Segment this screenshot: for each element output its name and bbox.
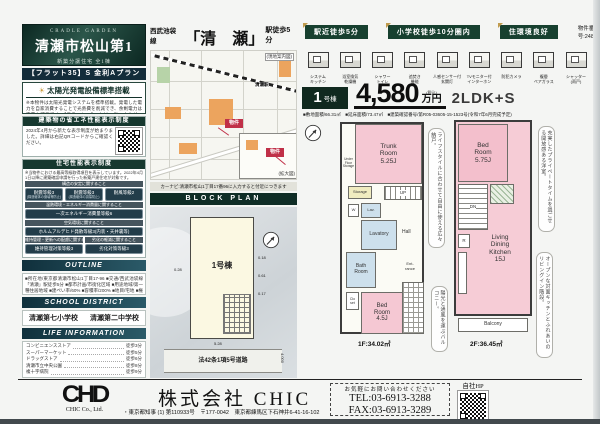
feature-item: システム キッチン [303,52,333,84]
floor-plans-area: Trunk Room 5.25J Under Floor Storage Sto… [302,120,594,376]
grade-badge-durability: 劣化対策等級3 [85,244,143,253]
grade-badge-seismic-1: 耐震等級3(構造躯体の倒壊等防止) [25,188,63,201]
station-map-label: 清瀬駅 [255,82,269,88]
map-landmark-block [165,107,181,119]
performance-intro: ※当物件における最高等級取得項目を表示しています。2022年4月1日以降に建築確… [25,170,143,180]
stairs-up: UP [384,186,422,200]
flat35-banner: 【フラット35】S 金利Aプラン [22,68,146,80]
chic-logo-mark: CHD [62,384,107,406]
area-1f: 1F:34.02㎡ [358,338,391,348]
life-item: 複十字病院徒歩9分 [26,369,142,376]
fax-number: FAX:03-6913-3289 [331,405,449,417]
dimension-right-1: 0.18 [258,255,266,260]
solar-fine-print: ※本物件は太陽光発電システムを標準搭載。発電した電力を自家消費することで光熱費を… [26,100,142,114]
pair-glass-icon [533,52,554,68]
performance-group-maintenance: 維持管理・更新への配慮に関すること [25,237,83,243]
room-ldk: Living Dining Kitchen 15J [478,234,522,264]
feature-item: 防犯カメラ [497,52,527,84]
station-name: 「清 瀬」 [184,32,263,48]
junior-high-school: 清瀬第二中学校 [90,313,139,323]
room-under-floor-storage: Under Floor Storage [342,158,355,169]
energy-label-section: 建築物の省エネ性能表示制度 2024年4月から新たな表示制度が始まりました。詳細… [22,116,146,157]
map-park-block [157,67,170,83]
energy-qr-code [116,128,142,154]
kitchen-counter [458,252,467,294]
life-information-list: コンビニエンスストア徒歩3分 スーパーマーケット徒歩5分 ドラッグストア徒歩6分… [22,341,146,378]
performance-group-structure: 構造の安定に関すること [25,181,143,187]
feature-label: 防犯カメラ [497,74,527,79]
lot-outline: 1号棟 [190,217,254,339]
energy-section-text: 2024年4月から新たな表示制度が始まりました。詳細は右記QRコードからご確認く… [26,128,113,154]
map-inset: 物件 (拡大図) [239,133,297,179]
stairs-down: DN [458,184,488,230]
note-bedroom-2f: 充実したプライベートタイムを過ごせる開放感ある洋室。 [538,126,555,232]
unit-number-badge: 1 号棟 [302,87,348,109]
map-landmark-block [279,59,291,77]
room-lavatory: Lavatory [361,220,397,250]
homepage-block: 自社HP [458,380,488,421]
security-camera-icon [501,52,522,68]
grade-badge-formaldehyde: ホルムアルデヒド発散等級3(内装・天井裏等) [25,227,143,236]
room-bedroom-1f: Bed Room 4.5J [361,292,403,334]
room-toilet: Lav. [361,203,381,218]
property-subtitle: 新築分譲住宅 全1棟 [23,58,145,65]
performance-section: 住宅性能表示制度 ※当物件における最高等級取得項目を表示しています。2022年4… [22,159,146,258]
property-title-block: CRADLE GARDEN 清瀬市松山第1 新築分譲住宅 全1棟 [22,24,146,66]
room-entrance: Ent- rance [405,262,415,271]
closet-2f [490,184,514,204]
note-storage-room: ライフスタイルに合わせて自由に使える広々納戸。 [428,128,445,248]
entrance-porch [402,282,424,334]
life-information-header: LIFE INFORMATION [22,328,146,339]
floor-plan-1f: Trunk Room 5.25J Under Floor Storage Sto… [340,122,424,334]
map-corner-note: (現地案内図) [265,53,295,61]
area-2f: 2F:36.45㎡ [470,338,503,348]
reheating-bath-icon [404,52,425,68]
refrigerator-space: R [458,234,470,248]
note-ldk: オープンな対面キッチンとふれあいのリビングイン階段。 [536,252,553,358]
school-district-row: 清瀬第七小学校 清瀬第二中学校 [22,310,146,326]
washer-space: W [348,204,359,217]
contact-box: お気軽にお問い合わせください TEL:03-6913-3288 FAX:03-6… [330,383,450,416]
road-width-dimension: 4.000 [280,353,285,363]
shower-toilet-icon [372,52,393,68]
map-road [151,81,297,82]
room-bath: Bath Room [346,252,376,288]
price-block: 4,580 (税込) 万円 [354,82,446,109]
marker-leader-line [218,127,229,135]
contact-note: お気軽にお問い合わせください [331,385,449,393]
scan-edge-bottom [0,419,600,424]
badge-school-distance: 小学校徒歩10分圏内 [388,25,480,39]
sensor-light-icon [437,52,458,68]
map-landmark-block [179,143,197,154]
dimension-right-3: 0.17 [258,291,266,296]
company-name: 株式会社 CHIC [158,384,311,411]
tv-interphone-icon [469,52,490,68]
footer: CHD CHIC Co., Ltd. 株式会社 CHIC ・東京都知事 (1) … [18,379,582,420]
spec-line: ■敷地面積/66.31㎡ ■延床面積/73.47㎡ ■建築確認番号/第R05-0… [303,112,591,118]
badge-near-station: 駅近徒歩5分 [305,25,368,39]
feature-label: シャッター (雨戸) [561,74,591,84]
energy-section-header: 建築物の省エネ性能表示制度 [23,117,145,126]
license-line: ・東京都知事 (1) 第110933号 〒177-0042 東京都練馬区下石神井… [123,408,319,416]
price-row: 1 号棟 4,580 (税込) 万円 2LDK+S [302,82,516,109]
company-logo: CHD CHIC Co., Ltd. [63,384,106,413]
bath-dryer-icon [340,52,361,68]
feature-item: 複層 ペアガラス [529,52,559,84]
room-storage: Storage [348,186,372,199]
route-header: 西武池袋線 「清 瀬」 駅徒歩5分 [150,24,297,48]
room-balcony: Balcony [458,318,528,332]
rail-line-name: 西武池袋線 [150,25,182,48]
solar-section: ☀太陽光発電設備標準搭載 ※本物件は太陽光発電システムを標準搭載。発電した電力を… [22,82,146,114]
lot-label: 1号棟 [191,260,253,271]
system-kitchen-icon [308,52,329,68]
room-trunk: Trunk Room 5.25J [355,124,422,184]
unit-number: 1 [313,90,321,105]
phone-number: TEL:03-6913-3288 [331,393,449,405]
compass-icon [262,231,280,249]
floor-layout-type: 2LDK+S [452,90,516,109]
marker-leader-line [275,156,286,165]
badge-environment: 住環境良好 [500,25,558,39]
outline-header: OUTLINE [22,260,146,271]
performance-group-durability: 劣化の軽減に関すること [85,237,143,243]
left-column: CRADLE GARDEN 清瀬市松山第1 新築分譲住宅 全1棟 【フラット35… [22,24,146,378]
dimension-right-2: 0.61 [258,273,266,278]
feature-icons-row: システム キッチン 浴室換気 乾燥機 シャワー トイレ 追焚き 機能 人感センサ… [303,52,591,84]
unit-suffix: 号棟 [324,93,337,103]
map-landmark-block [246,140,258,150]
performance-group-air: 空気環境に関すること [25,220,143,226]
note-balcony: 陽光と通風を運ぶバルコニー。 [431,286,448,352]
road-label: 法42条1項5号道路 [164,350,282,372]
feature-item: シャッター (雨戸) [561,52,591,84]
performance-section-header: 住宅性能表示制度 [23,160,145,169]
property-marker: 物件 [225,119,243,128]
price-value: 4,580 [356,82,419,105]
grade-badge-wind: 耐風等級2 [105,188,143,201]
block-plan-header: BLOCK PLAN [150,193,297,205]
inset-note: (拡大図) [279,171,296,177]
grade-badge-energy: 一次エネルギー消費量等級6 [25,209,143,218]
outline-body: ■所在地/東京都清瀬市松山1丁目17-96 ■交通/西武池袋線「清瀬」駅徒歩5分… [22,273,146,296]
block-plan: 1号棟 0.28 0.18 0.61 0.17 5.28 法42条1項5号道路 … [150,207,297,378]
price-unit: 万円 [422,95,442,105]
sun-icon: ☀ [38,86,45,95]
compass-icon [304,124,322,142]
room-closet-1f: Clo set [346,292,359,310]
feature-item: TVモニター付 インターホン [464,52,494,84]
dimension-left: 0.28 [174,267,182,272]
dimension-bottom: 5.28 [214,341,222,346]
elementary-school: 清瀬第七小学校 [29,313,78,323]
grade-badge-seismic-2: 耐震等級3(構造躯体の損傷防止) [65,188,103,201]
room-bedroom-2f: Bed Room 5.75J [458,124,508,182]
floor-plan-2f: Bed Room 5.75J DN R Living Dining Kitche… [454,120,532,316]
property-title: 清瀬市松山第1 [23,36,145,56]
homepage-qr-code [458,391,488,421]
top-badges-row: 駅近徒歩5分 小学校徒歩10分圏内 住環境良好 物件番号:24882 [305,24,590,40]
location-map: 清瀬駅 物件 物件 (拡大図) (現地案内図) [150,50,297,180]
grade-badge-maintenance: 維持管理対策等級3 [25,244,83,253]
room-hall: Hall [402,230,411,236]
parking-hatch [223,294,251,334]
feature-item: 人感センサー付 玄関灯 [432,52,462,84]
car-navi-caption: カーナビ:清瀬市松山1丁目17番96に入力すると付近につきます [150,182,297,191]
walk-time: 駅徒歩5分 [265,25,297,48]
scan-edge-right [593,0,600,424]
school-district-header: SCHOOL DISTRICT [22,297,146,308]
middle-column: 西武池袋線 「清 瀬」 駅徒歩5分 清瀬駅 物件 物件 [150,24,297,378]
feature-label: 複層 ペアガラス [529,74,559,84]
performance-group-energy: 温熱環境・エネルギー消費量に関すること [25,202,143,208]
solar-header: ☀太陽光発電設備標準搭載 [26,85,142,98]
brand-name: CRADLE GARDEN [23,29,145,34]
solar-header-text: 太陽光発電設備標準搭載 [47,86,130,95]
shutter-icon [566,52,587,68]
flyer-page: CRADLE GARDEN 清瀬市松山第1 新築分譲住宅 全1棟 【フラット35… [0,0,600,424]
homepage-label: 自社HP [458,380,488,390]
road-band: 法42条1項5号道路 4.000 [164,349,282,373]
